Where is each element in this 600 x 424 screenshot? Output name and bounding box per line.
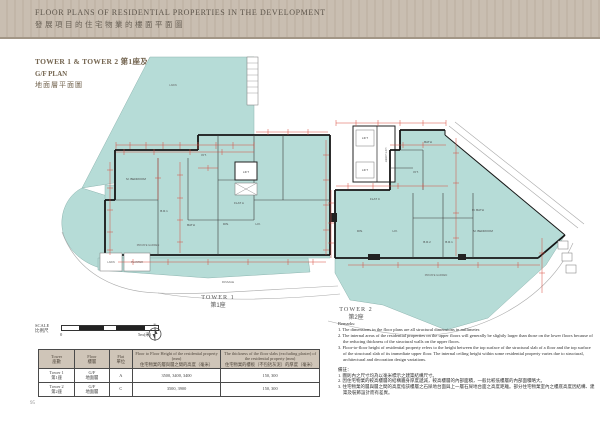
tower1-caption: TOWER 1 [201, 294, 235, 301]
room-label-lift: LIFT [243, 170, 249, 174]
cell-tower: Tower 1第1座 [39, 369, 75, 383]
col-height: Floor to Floor Height of the residential… [132, 350, 220, 369]
cell-height: 3500, 3900 [132, 382, 220, 396]
brochure-page: FLOOR PLANS OF RESIDENTIAL PROPERTIES IN… [0, 0, 600, 424]
scale-bar [61, 325, 159, 331]
table-header-row: Tower座數 Floor樓層 Flat單位 Floor to Floor He… [39, 350, 320, 369]
tower2-caption-chinese: 第2座 [348, 313, 363, 321]
table-row: Tower 2第2座 G/F地面層 C 3500, 3900 150, 300 [39, 382, 320, 396]
room-label-planter: PLANTER [131, 260, 143, 264]
room-label-br2: B.R.2 [423, 240, 431, 244]
room-label-lawn: LAWN [169, 83, 177, 87]
col-flat: Flat單位 [109, 350, 132, 369]
tower2-caption: TOWER 2 [339, 306, 373, 313]
wall-pier [368, 254, 380, 260]
room-label-br1: B.R.1 [445, 240, 453, 244]
room-label-liv: LIV. [255, 222, 260, 226]
room-label-private-garden: PRIVATE GARDEN [425, 273, 448, 277]
page-title-chinese: 發展項目的住宅物業的樓面平面圖 [35, 19, 185, 30]
room-label-kit: KIT. [201, 153, 206, 157]
room-label-m-bedroom: M. BEDROOM [126, 177, 146, 181]
room-label-liv: LIV. [392, 229, 397, 233]
utility-box [566, 265, 576, 273]
room-label-m-bedroom: M. BEDROOM [473, 229, 493, 233]
room-label-br1: B.R.1 [160, 209, 168, 213]
site-boundary-outer [158, 293, 340, 299]
room-label-bath: BATH [424, 140, 432, 144]
tower1-floor-plan: LAWN M. BEDROOM B.R.1 BATH KIT. FLAT A D… [58, 50, 340, 312]
svg-text:N: N [154, 322, 157, 327]
cell-tower: Tower 2第2座 [39, 382, 75, 396]
cell-height: 3500, 3400, 3400 [132, 369, 220, 383]
col-floor: Floor樓層 [75, 350, 109, 369]
scale-start: 0 [60, 332, 62, 337]
wall-pier [458, 254, 466, 260]
tower2-floor-plan: LIFT LIFT LIFT LOBBY KIT. BATH FLAT C DI… [328, 93, 595, 338]
cell-flat: C [109, 382, 132, 396]
page-number: 95 [30, 401, 35, 406]
col-thickness: The thickness of the floor slabs (exclud… [221, 350, 320, 369]
room-label-kit: KIT. [413, 170, 418, 174]
room-label-din: DIN. [223, 222, 229, 226]
remark-en-3: 3. Floor-to-floor height of residential … [338, 345, 595, 363]
cell-floor: G/F地面層 [75, 369, 109, 383]
room-label-lift1: LIFT [362, 136, 368, 140]
north-compass-icon: N [146, 321, 164, 343]
remark-en-2: 2. The internal areas of the residential… [338, 333, 595, 345]
room-label-lawn-small: LAWN [107, 260, 115, 264]
room-label-lift2: LIFT [362, 168, 368, 172]
utility-box [558, 241, 568, 249]
room-label-flat-c: FLAT C [370, 197, 381, 201]
cell-floor: G/F地面層 [75, 382, 109, 396]
spec-table: Tower座數 Floor樓層 Flat單位 Floor to Floor He… [38, 349, 320, 397]
cell-flat: A [109, 369, 132, 383]
cell-thickness: 150, 300 [221, 382, 320, 396]
room-label-lift-lobby: LIFT LOBBY [384, 148, 388, 163]
utility-box [562, 253, 572, 261]
tower1-building [105, 135, 330, 258]
cell-thickness: 150, 300 [221, 369, 320, 383]
scale-label-zh: 比例尺 [35, 328, 49, 333]
room-label-m-bath: M. BATH [472, 208, 484, 212]
tower1-caption-chinese: 第1座 [210, 301, 225, 309]
remark-zh-3: 3. 住宅物業的層與層之間的高度指該樓層之石屎地台面與上一層石屎地台面之高度距離… [338, 384, 595, 396]
wall-pier [331, 213, 337, 222]
room-label-flat-a: FLAT A [234, 201, 244, 205]
room-label-private-garden: PRIVATE GARDEN [137, 243, 160, 247]
room-label-din: DIN. [357, 229, 363, 233]
col-tower: Tower座數 [39, 350, 75, 369]
page-title: FLOOR PLANS OF RESIDENTIAL PROPERTIES IN… [35, 8, 326, 17]
table-row: Tower 1第1座 G/F地面層 A 3500, 3400, 3400 150… [39, 369, 320, 383]
remarks-section: Remarks: 1. The dimensions in the floor … [338, 321, 595, 396]
room-label-bath: BATH [187, 223, 195, 227]
room-label-passage: PASSAGE [222, 280, 234, 284]
